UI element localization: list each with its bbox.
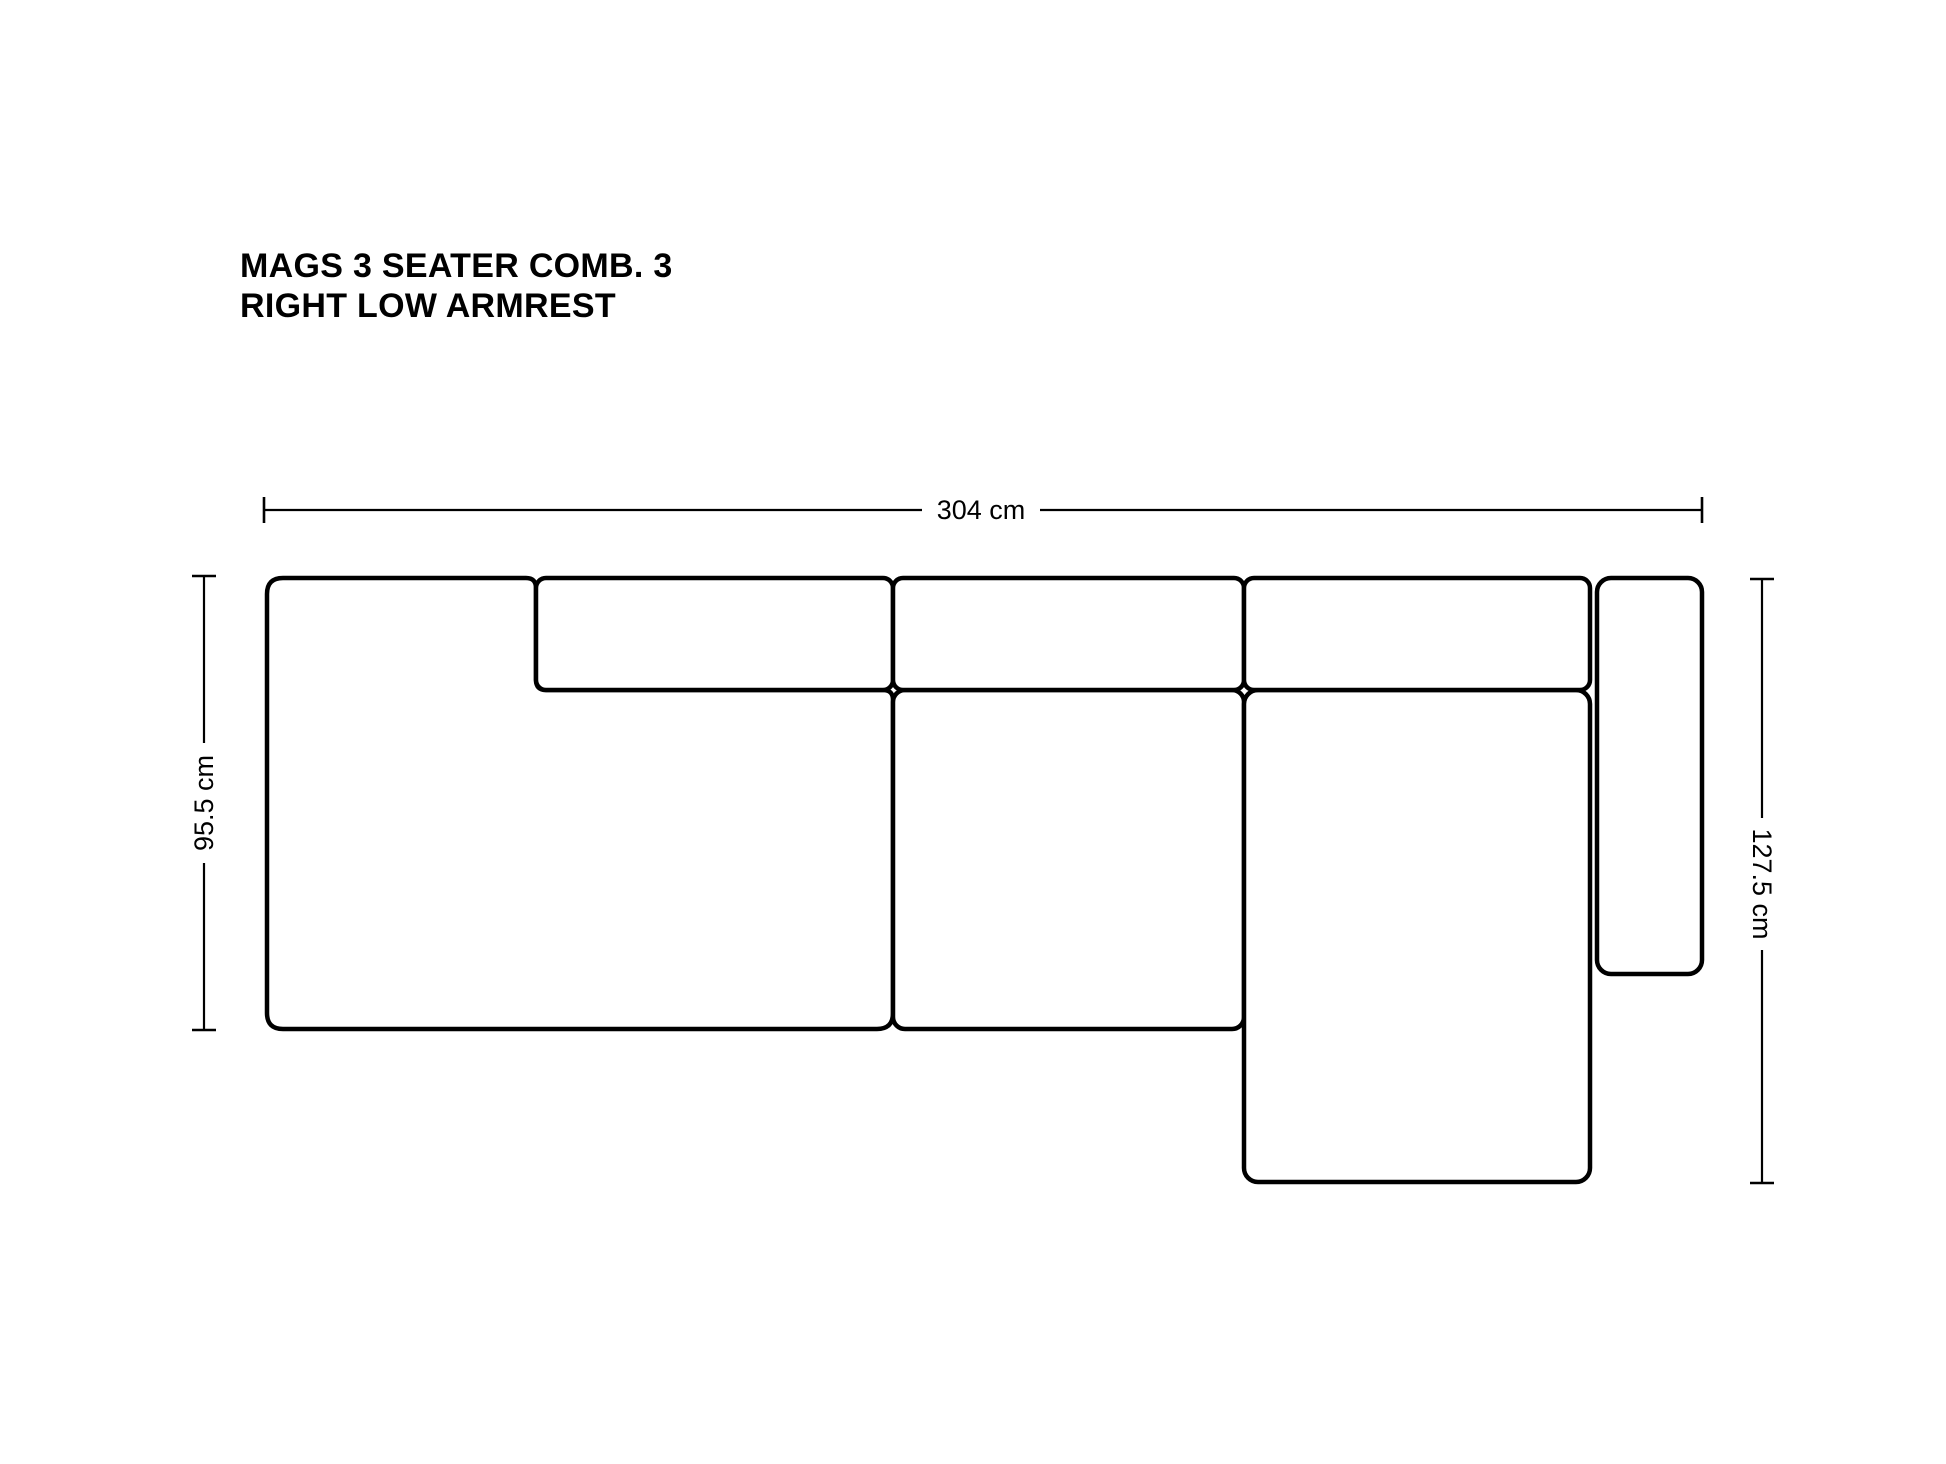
right-low-armrest [1597,578,1702,974]
middle-seat-module [893,690,1244,1029]
backrest-cushion-right [1244,578,1590,690]
right-height-dimension-label: 127.5 cm [1747,828,1777,939]
diagram-canvas: MAGS 3 SEATER COMB. 3 RIGHT LOW ARMREST [0,0,1946,1464]
sofa-outline-group [267,578,1702,1182]
backrest-cushion-left [536,578,893,690]
width-dimension-label: 304 cm [937,495,1026,525]
chaise-longue-seat [1244,690,1590,1182]
sofa-top-view-diagram: 304 cm 95.5 cm 127.5 cm [0,0,1946,1464]
left-height-dimension-label: 95.5 cm [189,755,219,851]
backrest-cushion-middle [893,578,1244,690]
